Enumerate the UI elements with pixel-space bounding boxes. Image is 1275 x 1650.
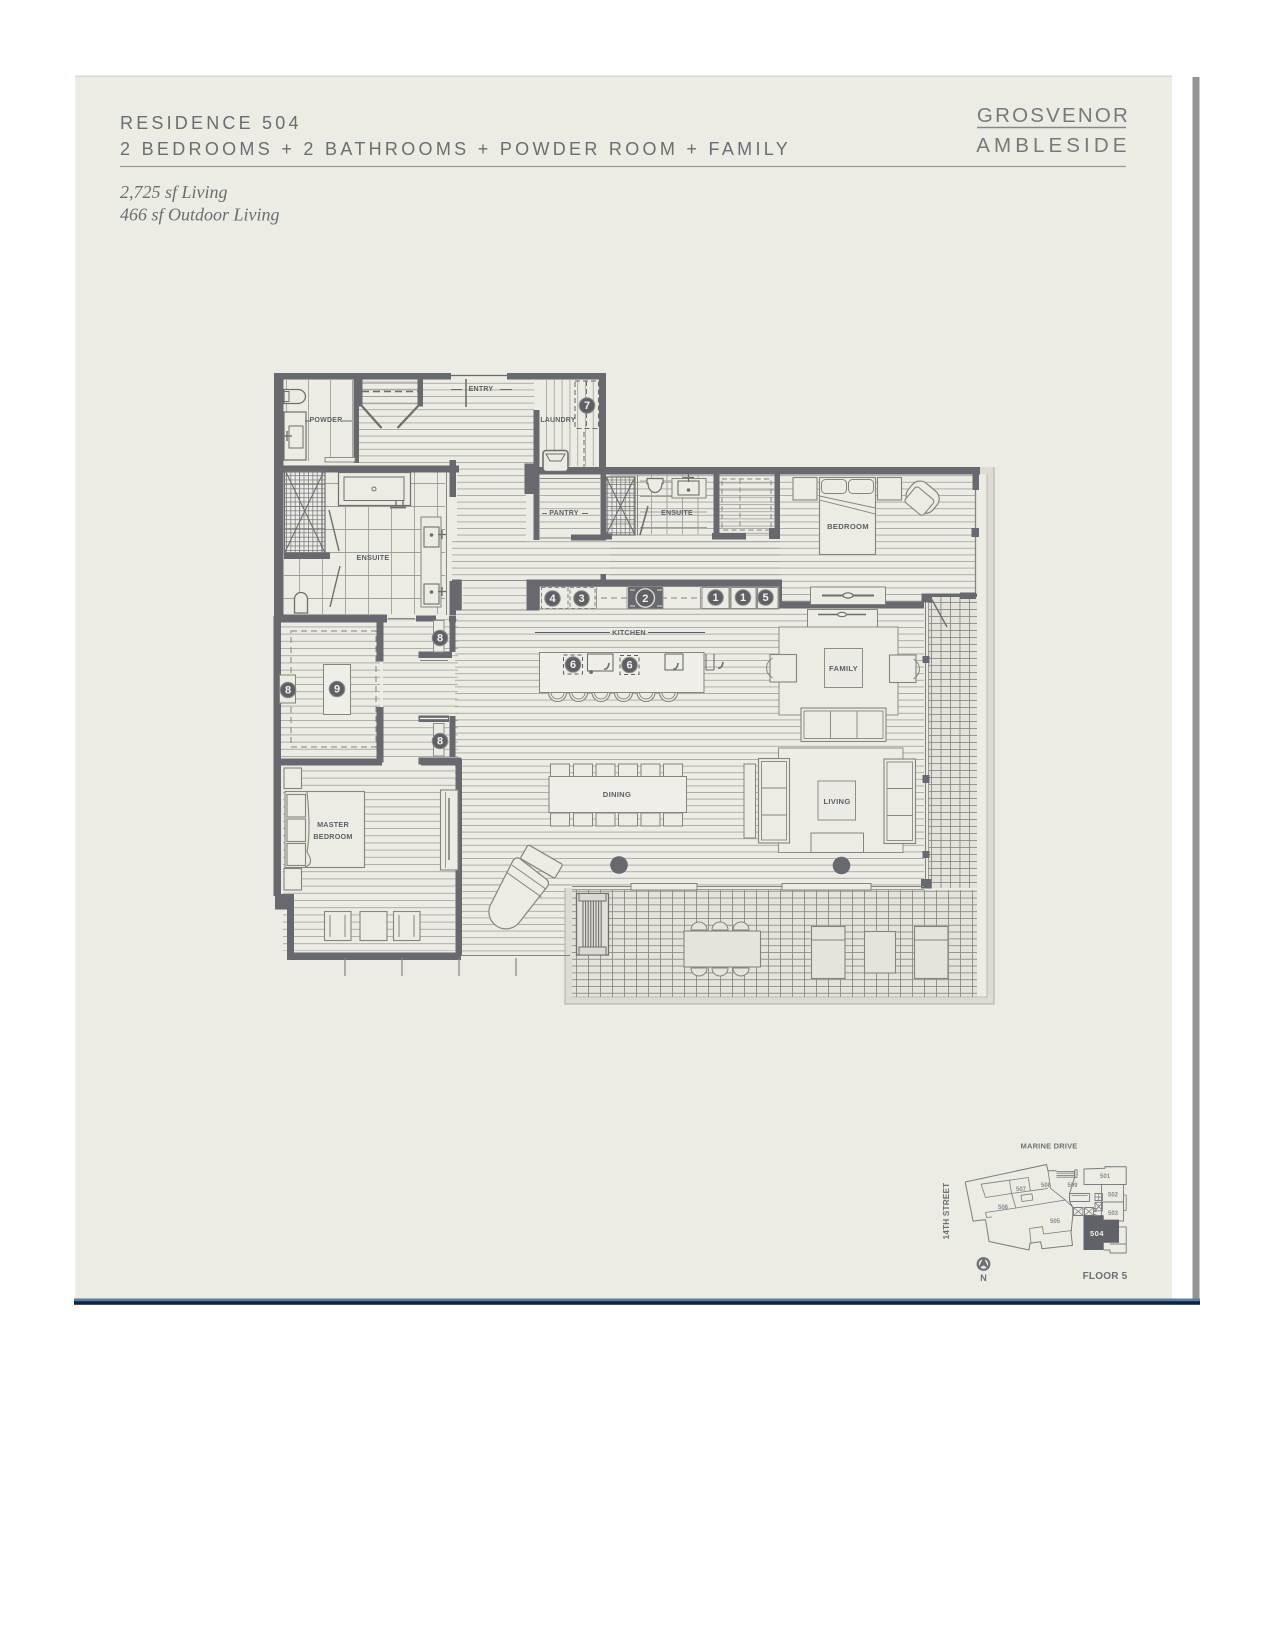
svg-text:ENSUITE: ENSUITE [661,510,693,517]
svg-text:LIVING: LIVING [823,797,850,806]
svg-text:506: 506 [998,1205,1009,1211]
svg-text:8: 8 [285,685,291,697]
svg-text:LAUNDRY: LAUNDRY [540,417,575,424]
svg-text:DINING: DINING [603,790,631,799]
svg-text:14TH STREET: 14TH STREET [942,1183,951,1240]
svg-text:BEDROOM: BEDROOM [313,832,352,841]
svg-text:8: 8 [437,633,443,645]
svg-text:FAMILY: FAMILY [829,664,858,673]
svg-text:KITCHEN: KITCHEN [612,628,646,637]
svg-text:BEDROOM: BEDROOM [827,522,869,531]
svg-text:6: 6 [570,659,576,671]
svg-text:AMBLESIDE: AMBLESIDE [976,134,1130,157]
svg-text:2: 2 [642,593,648,605]
svg-text:MARINE DRIVE: MARINE DRIVE [1021,1142,1078,1151]
svg-text:503: 503 [1108,1211,1119,1217]
svg-text:4: 4 [549,593,556,605]
svg-text:2,725 sf Living: 2,725 sf Living [120,182,228,202]
svg-text:GROSVENOR: GROSVENOR [977,104,1130,127]
svg-text:507: 507 [1016,1187,1027,1193]
svg-text:PANTRY: PANTRY [549,510,579,517]
svg-text:RESIDENCE 504: RESIDENCE 504 [120,113,302,133]
svg-text:5: 5 [762,592,768,604]
svg-text:8: 8 [437,736,443,748]
svg-text:3: 3 [578,593,584,605]
svg-text:1: 1 [740,592,746,604]
svg-text:POWDER: POWDER [310,417,343,424]
svg-text:MASTER: MASTER [317,820,349,829]
svg-text:466 sf Outdoor Living: 466 sf Outdoor Living [120,205,280,225]
svg-text:FLOOR 5: FLOOR 5 [1083,1271,1128,1282]
svg-text:2 BEDROOMS + 2 BATHROOMS + POW: 2 BEDROOMS + 2 BATHROOMS + POWDER ROOM +… [120,139,791,159]
svg-text:6: 6 [626,660,632,672]
svg-text:N: N [980,1273,987,1283]
svg-text:7: 7 [584,400,590,412]
svg-text:505: 505 [1050,1219,1061,1225]
svg-text:ENTRY: ENTRY [469,386,494,393]
svg-text:502: 502 [1108,1193,1119,1199]
svg-text:508: 508 [1041,1183,1052,1189]
svg-text:9: 9 [334,684,340,696]
svg-text:ENSUITE: ENSUITE [357,553,390,562]
svg-text:509: 509 [1067,1183,1078,1189]
svg-text:504: 504 [1090,1229,1104,1238]
svg-text:1: 1 [712,592,718,604]
svg-text:501: 501 [1100,1174,1111,1180]
